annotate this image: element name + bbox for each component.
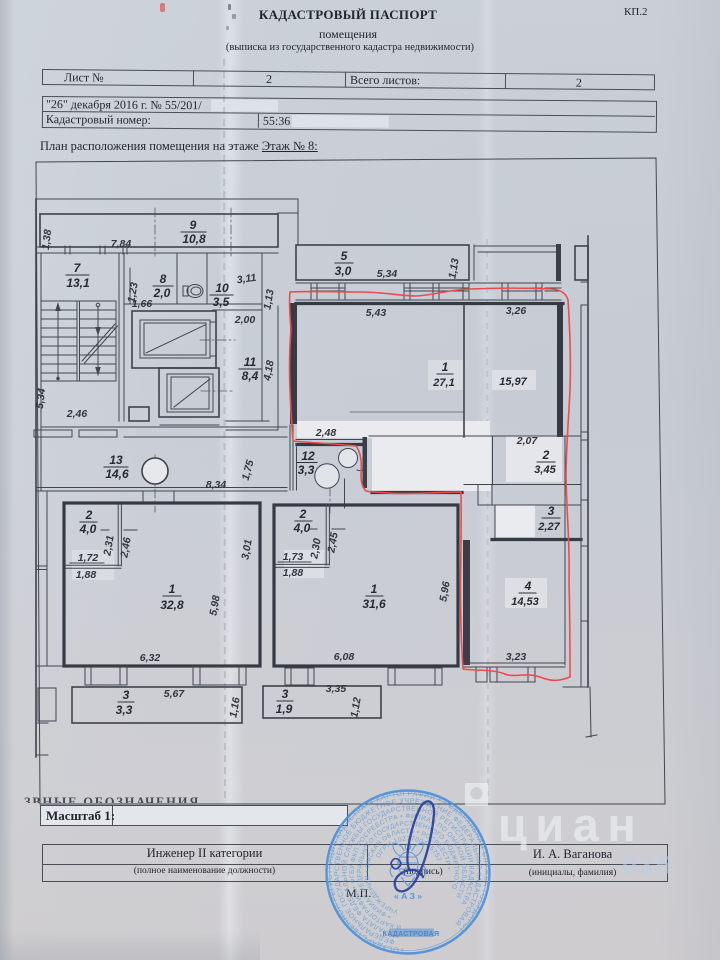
svg-text:036: 036 [622,850,673,880]
svg-text:циан: циан [498,798,644,851]
